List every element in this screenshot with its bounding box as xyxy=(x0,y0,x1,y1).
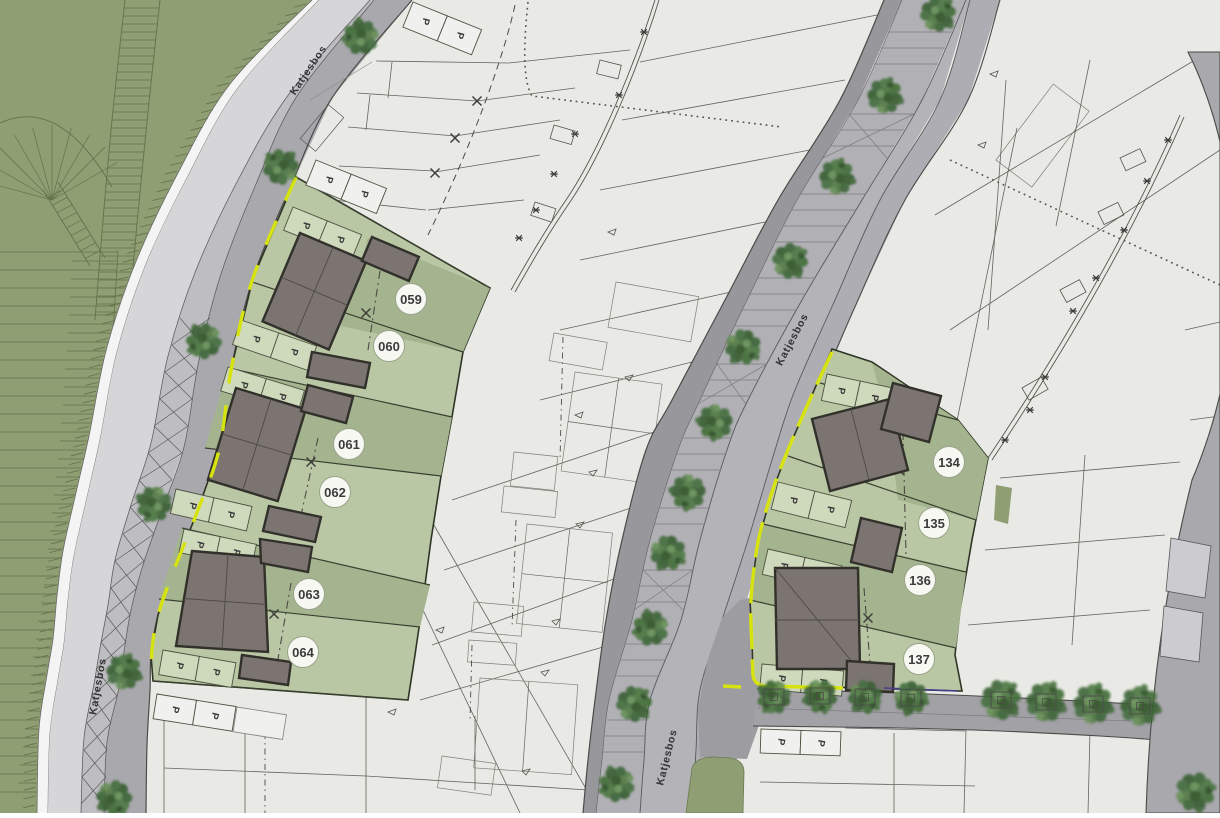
svg-text:062: 062 xyxy=(324,485,346,500)
svg-text:061: 061 xyxy=(338,437,360,452)
svg-text:137: 137 xyxy=(908,652,930,667)
svg-text:134: 134 xyxy=(938,455,960,470)
svg-text:059: 059 xyxy=(400,292,422,307)
svg-text:136: 136 xyxy=(909,573,931,588)
svg-text:063: 063 xyxy=(298,587,320,602)
svg-text:060: 060 xyxy=(378,339,400,354)
svg-text:135: 135 xyxy=(923,516,945,531)
svg-text:064: 064 xyxy=(292,645,314,660)
